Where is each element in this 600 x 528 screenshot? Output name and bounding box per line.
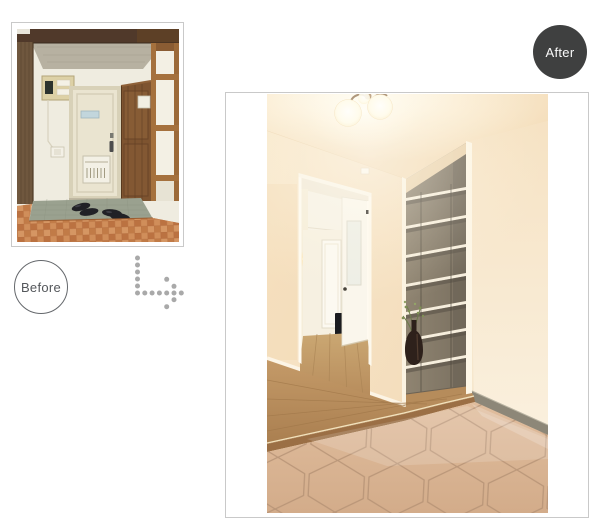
after-badge: After (533, 25, 587, 79)
before-open-wood-door (121, 81, 151, 201)
before-glass-partition (151, 43, 179, 201)
before-ceiling (31, 42, 165, 69)
before-badge: Before (14, 260, 68, 314)
after-photo-frame (225, 92, 589, 518)
before-badge-label: Before (21, 280, 61, 295)
arrow-down-right-icon (132, 252, 188, 314)
after-badge-label: After (546, 45, 575, 60)
before-photo (17, 29, 179, 242)
after-photo (267, 94, 548, 513)
before-wood-pillar (17, 42, 33, 204)
before-front-door (69, 86, 121, 204)
before-after-comparison: Before After (0, 0, 600, 528)
before-wood-beam (17, 29, 179, 43)
before-photo-frame (11, 22, 184, 247)
